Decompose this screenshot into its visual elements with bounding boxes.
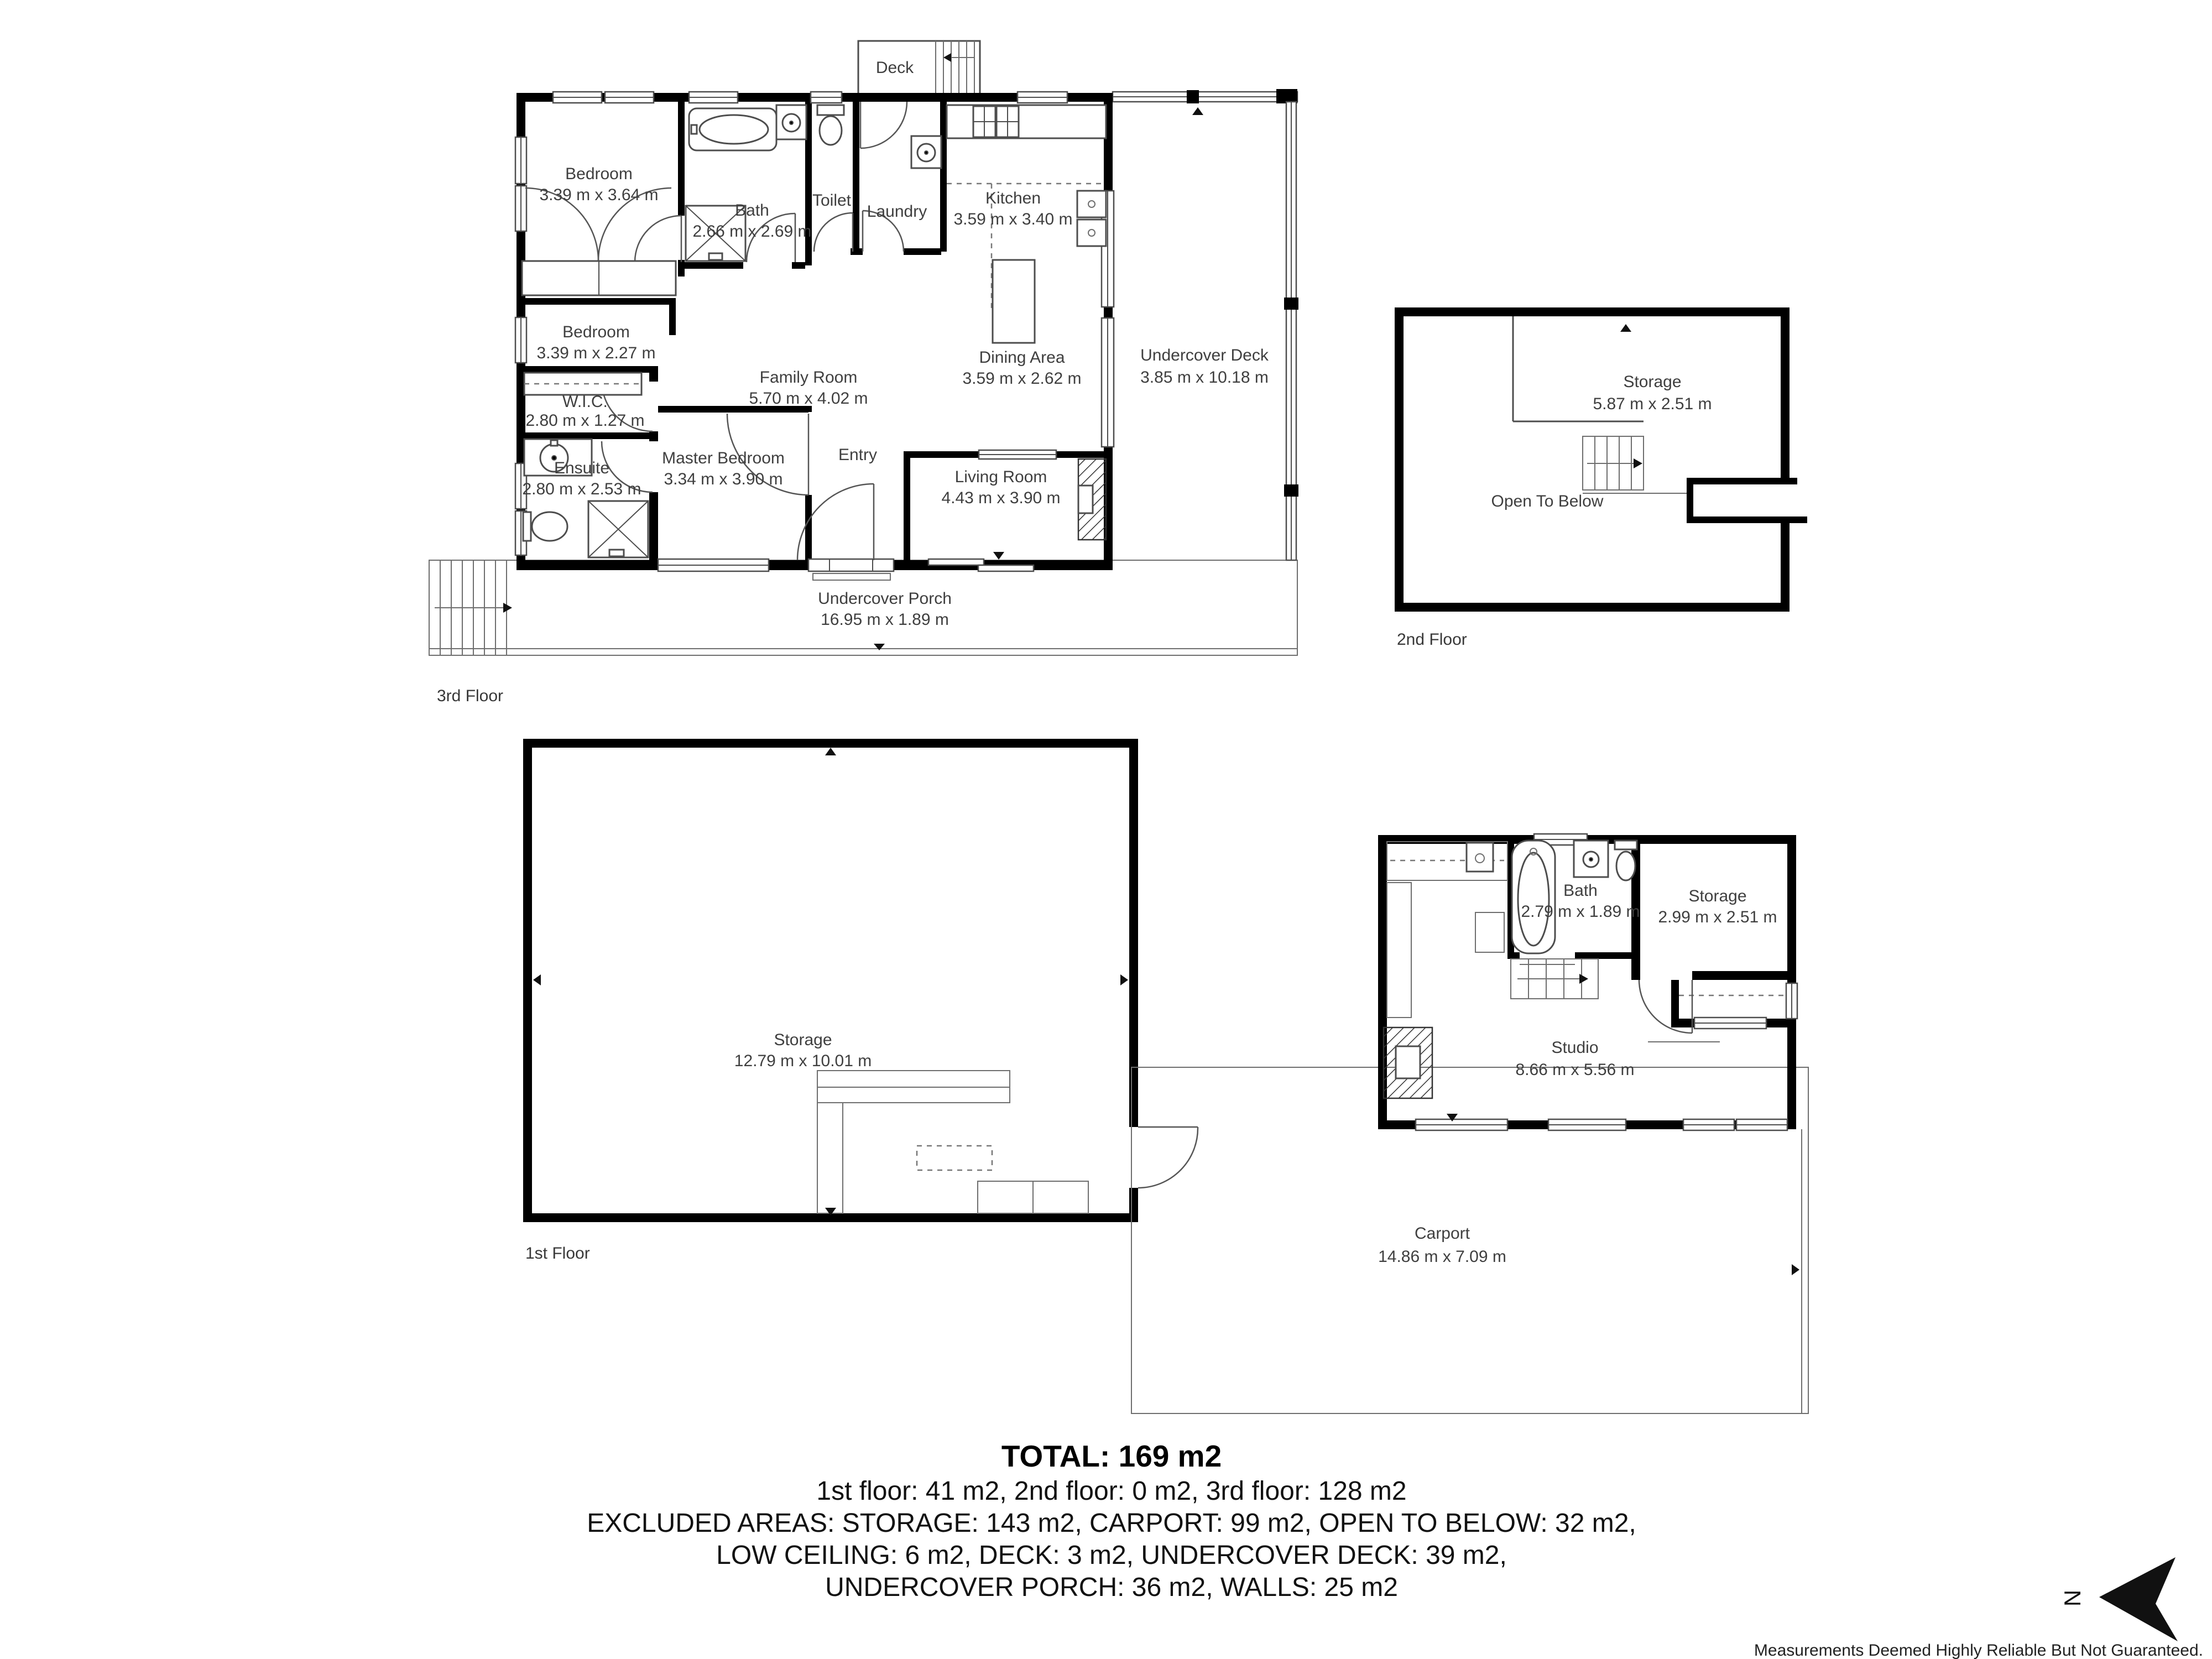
toilet-icon bbox=[817, 105, 844, 145]
room-label-studio: Studio 8.66 m x 5.56 m bbox=[1515, 1039, 1634, 1079]
room-name: Living Room bbox=[955, 468, 1047, 486]
room-dims: 5.70 m x 4.02 m bbox=[749, 389, 868, 408]
room-label-toilet: Toilet bbox=[812, 191, 852, 210]
room-dims: 3.34 m x 3.90 m bbox=[664, 470, 782, 488]
summary-floors: 1st floor: 41 m2, 2nd floor: 0 m2, 3rd f… bbox=[816, 1477, 1406, 1506]
room-name: Storage bbox=[1623, 373, 1681, 391]
room-label-storage-2nd: Storage 5.87 m x 2.51 m bbox=[1593, 373, 1712, 413]
room-dims: 2.99 m x 2.51 m bbox=[1658, 908, 1777, 926]
room-dims: 3.39 m x 3.64 m bbox=[539, 186, 658, 204]
bath-sink-icon bbox=[776, 105, 806, 139]
room-name: Master Bedroom bbox=[662, 449, 785, 467]
disclaimer-text: Measurements Deemed Highly Reliable But … bbox=[1754, 1641, 2203, 1659]
room-label-wic: W.I.C. 2.80 m x 1.27 m bbox=[525, 393, 644, 430]
studio-building: Bath 2.79 m x 1.89 m Storage 2.99 m x 2.… bbox=[1131, 834, 1808, 1413]
studio-doors bbox=[1639, 980, 1720, 1042]
room-dims: 3.59 m x 3.40 m bbox=[953, 210, 1072, 228]
north-arrow-icon bbox=[2099, 1557, 2178, 1641]
room-dims: 2.79 m x 1.89 m bbox=[1521, 902, 1640, 921]
undercover-deck-outline bbox=[1113, 89, 1298, 560]
floor-1st-interior bbox=[817, 1071, 1088, 1213]
room-dims: 16.95 m x 1.89 m bbox=[821, 611, 949, 629]
bathtub-icon bbox=[689, 108, 776, 150]
room-dims: 3.39 m x 2.27 m bbox=[536, 344, 655, 362]
room-label-storage-studio: Storage 2.99 m x 2.51 m bbox=[1658, 887, 1777, 926]
room-label-bedroom-2: Bedroom 3.39 m x 2.27 m bbox=[536, 323, 655, 362]
room-dims: 2.80 m x 2.53 m bbox=[522, 480, 641, 498]
area-summary: TOTAL: 169 m2 1st floor: 41 m2, 2nd floo… bbox=[587, 1439, 1636, 1602]
floorplan-canvas: Bedroom 3.39 m x 3.64 m Bath 2.66 m x 2.… bbox=[0, 0, 2212, 1659]
stairs-arrow-icon bbox=[503, 603, 512, 613]
stairs-arrow-icon bbox=[943, 53, 951, 62]
floor-label-3rd: 3rd Floor bbox=[437, 687, 503, 705]
room-label-living-room: Living Room 4.43 m x 3.90 m bbox=[941, 468, 1060, 507]
room-dims: 2.66 m x 2.69 m bbox=[692, 222, 811, 241]
north-label: N bbox=[2059, 1590, 2085, 1606]
room-name: Kitchen bbox=[985, 189, 1041, 207]
room-dims: 2.80 m x 1.27 m bbox=[525, 411, 644, 430]
summary-excluded-2: LOW CEILING: 6 m2, DECK: 3 m2, UNDERCOVE… bbox=[716, 1541, 1507, 1570]
floor-1st-door bbox=[1138, 1127, 1198, 1188]
marker bbox=[1620, 324, 1631, 332]
room-name: Bedroom bbox=[565, 165, 633, 183]
floor-2nd-walls bbox=[1395, 307, 1807, 612]
bath-sink-icon bbox=[1574, 841, 1608, 877]
floor-2nd-stairs bbox=[1583, 436, 1687, 493]
room-label-deck: Deck bbox=[876, 59, 914, 77]
room-dims: 12.79 m x 10.01 m bbox=[734, 1052, 872, 1070]
stairs-arrow-icon bbox=[1579, 974, 1588, 984]
room-label-entry: Entry bbox=[838, 446, 877, 464]
summary-excluded-3: UNDERCOVER PORCH: 36 m2, WALLS: 25 m2 bbox=[825, 1573, 1398, 1602]
compass: N bbox=[2059, 1557, 2178, 1641]
porch-stairs bbox=[435, 560, 512, 655]
undercover-porch-outline bbox=[429, 560, 1297, 655]
room-name: Studio bbox=[1551, 1039, 1598, 1057]
fireplace-icon bbox=[1078, 459, 1106, 540]
studio-windows bbox=[1416, 834, 1797, 1130]
room-label-family-room: Family Room 5.70 m x 4.02 m bbox=[749, 368, 868, 408]
floorplan-page: Bedroom 3.39 m x 3.64 m Bath 2.66 m x 2.… bbox=[0, 0, 2212, 1659]
room-label-kitchen: Kitchen 3.59 m x 3.40 m bbox=[953, 189, 1072, 228]
toilet-icon bbox=[1615, 841, 1637, 880]
summary-total: TOTAL: 169 m2 bbox=[1001, 1439, 1222, 1473]
room-label-undercover-deck: Undercover Deck 3.85 m x 10.18 m bbox=[1140, 346, 1269, 387]
stairs-arrow-icon bbox=[1634, 458, 1642, 468]
room-name: Undercover Porch bbox=[818, 589, 952, 608]
bathtub-icon bbox=[1512, 841, 1555, 953]
room-name: Storage bbox=[774, 1031, 832, 1049]
floor-1st: Storage 12.79 m x 10.01 m 1st Floor bbox=[523, 739, 1198, 1262]
room-name: Ensuite bbox=[554, 459, 609, 477]
room-label-master-bedroom: Master Bedroom 3.34 m x 3.90 m bbox=[662, 449, 785, 488]
room-dims: 4.43 m x 3.90 m bbox=[941, 489, 1060, 507]
studio-walls bbox=[1378, 835, 1796, 1129]
room-dims: 5.87 m x 2.51 m bbox=[1593, 395, 1712, 413]
wic-closet bbox=[524, 373, 641, 395]
room-dims: 3.59 m x 2.62 m bbox=[962, 369, 1081, 388]
room-dims: 8.66 m x 5.56 m bbox=[1515, 1061, 1634, 1079]
floor-3rd: Bedroom 3.39 m x 3.64 m Bath 2.66 m x 2.… bbox=[429, 41, 1298, 705]
washer-icon bbox=[911, 136, 941, 168]
floor-1st-markers bbox=[533, 748, 1128, 1215]
wardrobe bbox=[522, 261, 676, 295]
room-name: Bath bbox=[1563, 881, 1598, 900]
fireplace-icon bbox=[1384, 1027, 1432, 1098]
floor-label-2nd: 2nd Floor bbox=[1397, 630, 1467, 649]
room-name: Bath bbox=[735, 201, 769, 220]
room-label-bedroom-1: Bedroom 3.39 m x 3.64 m bbox=[539, 165, 658, 204]
room-name: Family Room bbox=[760, 368, 858, 387]
floor-1st-walls bbox=[523, 739, 1138, 1222]
room-label-laundry: Laundry bbox=[867, 202, 927, 221]
room-label-undercover-porch: Undercover Porch 16.95 m x 1.89 m bbox=[818, 589, 952, 629]
room-name: W.I.C. bbox=[562, 393, 608, 411]
floor-2nd: Storage 5.87 m x 2.51 m Open To Below 2n… bbox=[1395, 307, 1807, 649]
room-dims: 14.86 m x 7.09 m bbox=[1378, 1248, 1506, 1266]
ensuite-fixtures bbox=[523, 439, 648, 557]
room-dims: 3.85 m x 10.18 m bbox=[1140, 368, 1269, 387]
room-label-carport: Carport 14.86 m x 7.09 m bbox=[1378, 1224, 1506, 1266]
floor-label-1st: 1st Floor bbox=[525, 1244, 590, 1262]
summary-excluded-1: EXCLUDED AREAS: STORAGE: 143 m2, CARPORT… bbox=[587, 1509, 1636, 1538]
room-name: Bedroom bbox=[562, 323, 630, 341]
room-name: Dining Area bbox=[979, 348, 1065, 367]
room-label-dining-area: Dining Area 3.59 m x 2.62 m bbox=[962, 348, 1081, 388]
room-label-storage-1st: Storage 12.79 m x 10.01 m bbox=[734, 1031, 872, 1070]
studio-counter bbox=[1387, 842, 1507, 1018]
room-label-open-to-below: Open To Below bbox=[1491, 492, 1604, 510]
room-name: Storage bbox=[1688, 887, 1746, 905]
room-name: Undercover Deck bbox=[1140, 346, 1269, 364]
room-name: Carport bbox=[1415, 1224, 1470, 1243]
